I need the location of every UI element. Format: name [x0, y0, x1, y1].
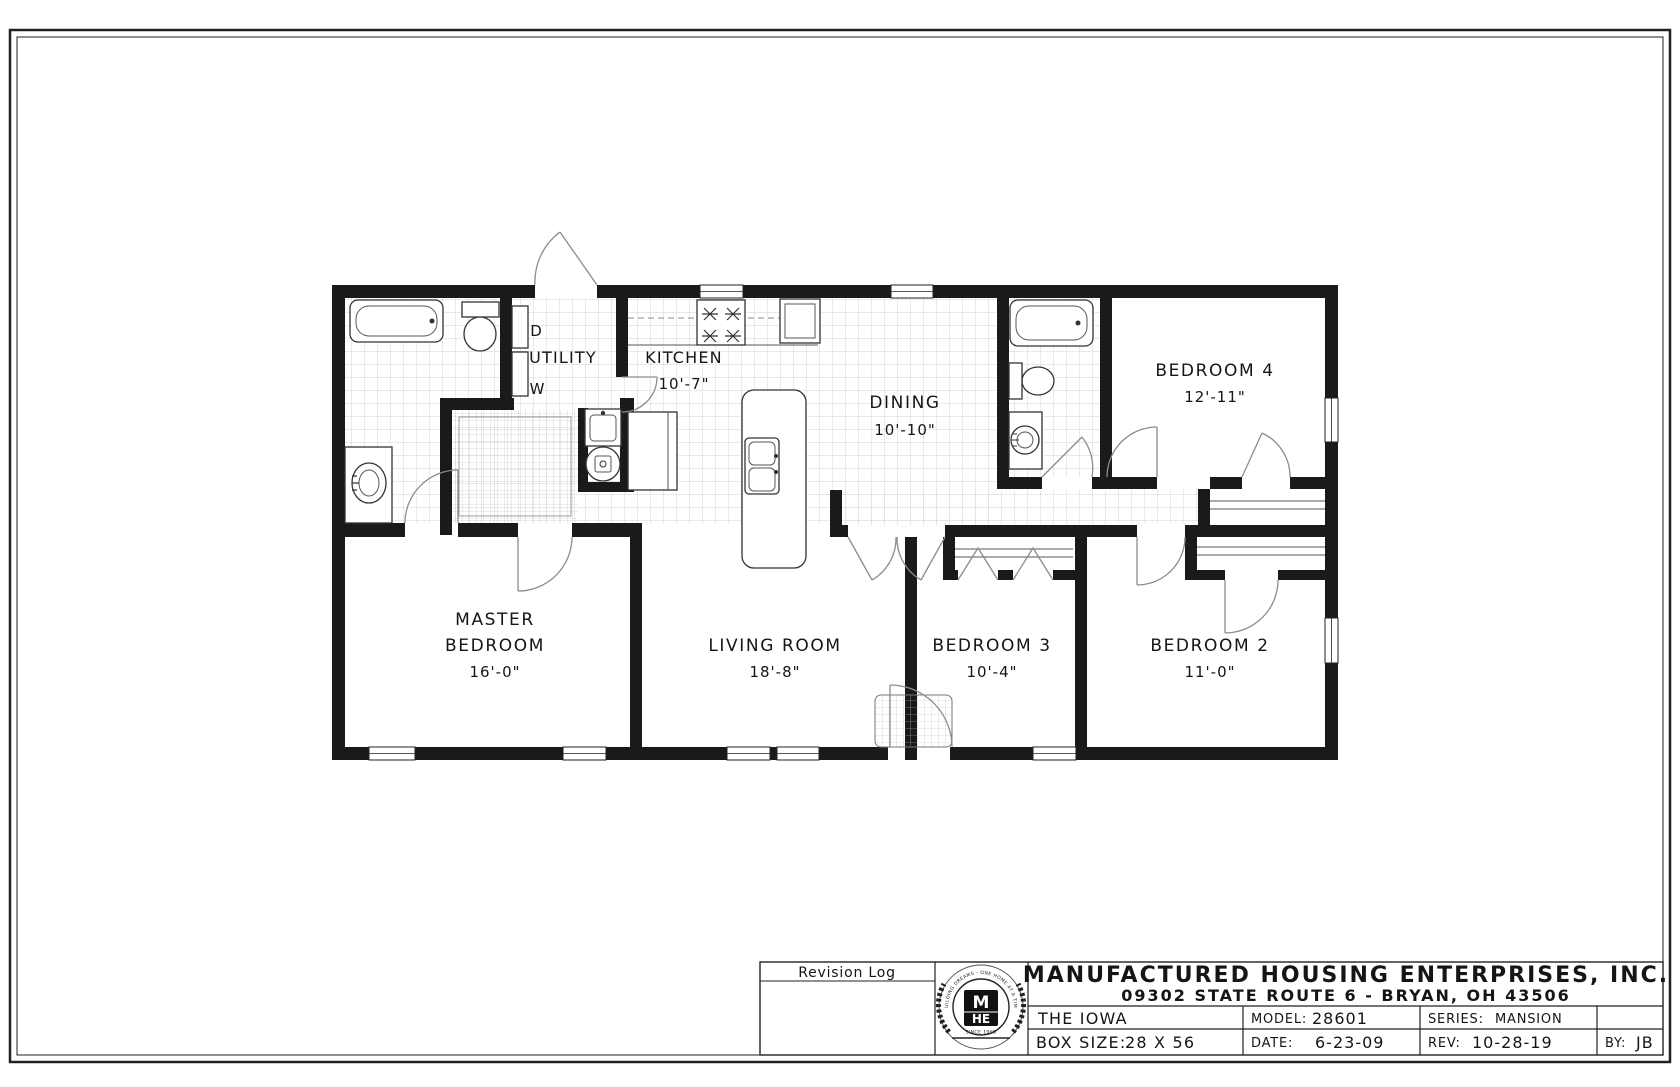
- washer-label: W: [530, 380, 545, 398]
- range: [697, 300, 745, 345]
- dryer: [512, 306, 528, 348]
- dryer-label: D: [530, 322, 542, 340]
- logo-since: SINCE 1965: [966, 1030, 997, 1036]
- floor-plan: D W UTILITY KITCHEN 10'-7" DINING 10'-10…: [332, 232, 1338, 760]
- hall-door-left: [848, 537, 896, 580]
- master-vanity-sink: [345, 447, 392, 523]
- room-label-bedroom2: BEDROOM 2: [1150, 636, 1269, 656]
- bedroom2-entry-door: [1137, 537, 1185, 585]
- window: [700, 285, 743, 298]
- window: [891, 285, 933, 298]
- page-border: [10, 30, 1670, 1062]
- revision-log-header: Revision Log: [798, 965, 896, 981]
- box-size-value: 28 X 56: [1125, 1033, 1195, 1052]
- room-dim-kitchen: 10'-7": [658, 375, 709, 393]
- rev-value: 10-28-19: [1472, 1033, 1553, 1052]
- by-value: JB: [1635, 1033, 1654, 1052]
- room-dim-bedroom3: 10'-4": [966, 663, 1017, 681]
- room-label-master-1: MASTER: [455, 610, 535, 630]
- bedroom2-closet-door: [1225, 580, 1278, 633]
- window: [1325, 618, 1338, 663]
- hall-bathtub: [1010, 300, 1093, 346]
- window: [1033, 747, 1076, 760]
- room-label-utility: UTILITY: [529, 348, 597, 367]
- model-value: 28601: [1312, 1009, 1368, 1028]
- room-label-kitchen: KITCHEN: [645, 348, 723, 367]
- room-label-master-2: BEDROOM: [445, 636, 545, 656]
- drawing-sheet: D W UTILITY KITCHEN 10'-7" DINING 10'-10…: [0, 0, 1680, 1087]
- master-bedroom-door: [518, 537, 572, 591]
- room-dim-bedroom4: 12'-11": [1184, 388, 1246, 406]
- room-dim-bedroom2: 11'-0": [1184, 663, 1235, 681]
- washer: [512, 352, 528, 396]
- master-toilet: [462, 302, 499, 351]
- company-name: MANUFACTURED HOUSING ENTERPRISES, INC.: [1023, 963, 1669, 988]
- utility-exterior-door: [535, 232, 597, 285]
- bedroom4-closet-door: [1242, 433, 1290, 477]
- master-bathtub: [350, 300, 443, 342]
- room-label-bedroom4: BEDROOM 4: [1155, 361, 1274, 381]
- company-address: 09302 STATE ROUTE 6 - BRYAN, OH 43506: [1121, 986, 1571, 1005]
- box-size-label: BOX SIZE:: [1036, 1033, 1126, 1052]
- room-label-dining: DINING: [869, 393, 940, 413]
- room-dim-master: 16'-0": [469, 663, 520, 681]
- kitchen-island: [742, 390, 806, 568]
- shower: [452, 410, 578, 523]
- window: [563, 747, 606, 760]
- entry-pad: [875, 695, 952, 747]
- logo-monogram-he: HE: [972, 1012, 990, 1026]
- series-label: SERIES:: [1428, 1012, 1484, 1027]
- bedroom3-entry-door: [897, 537, 945, 580]
- date-label: DATE:: [1251, 1036, 1293, 1051]
- date-value: 6-23-09: [1315, 1033, 1384, 1052]
- room-label-bedroom3: BEDROOM 3: [932, 636, 1051, 656]
- model-label: MODEL:: [1251, 1012, 1307, 1027]
- window: [369, 747, 415, 760]
- by-label: BY:: [1605, 1036, 1626, 1051]
- series-value: MANSION: [1495, 1012, 1562, 1027]
- floor-plan-drawing: D W UTILITY KITCHEN 10'-7" DINING 10'-10…: [0, 0, 1680, 1087]
- plan-name: THE IOWA: [1037, 1009, 1128, 1028]
- hall-vanity-sink: [1009, 412, 1042, 469]
- window: [1325, 398, 1338, 442]
- rev-label: REV:: [1428, 1036, 1461, 1051]
- room-label-living: LIVING ROOM: [708, 636, 841, 656]
- refrigerator: [780, 299, 820, 343]
- logo-monogram-m: M: [973, 993, 990, 1013]
- window: [777, 747, 819, 760]
- laundry-tub: [586, 447, 620, 481]
- room-dim-living: 18'-8": [749, 663, 800, 681]
- window: [727, 747, 770, 760]
- bedroom4-entry-door: [1107, 427, 1157, 477]
- room-dim-dining: 10'-10": [874, 421, 936, 439]
- utility-sink: [585, 409, 621, 446]
